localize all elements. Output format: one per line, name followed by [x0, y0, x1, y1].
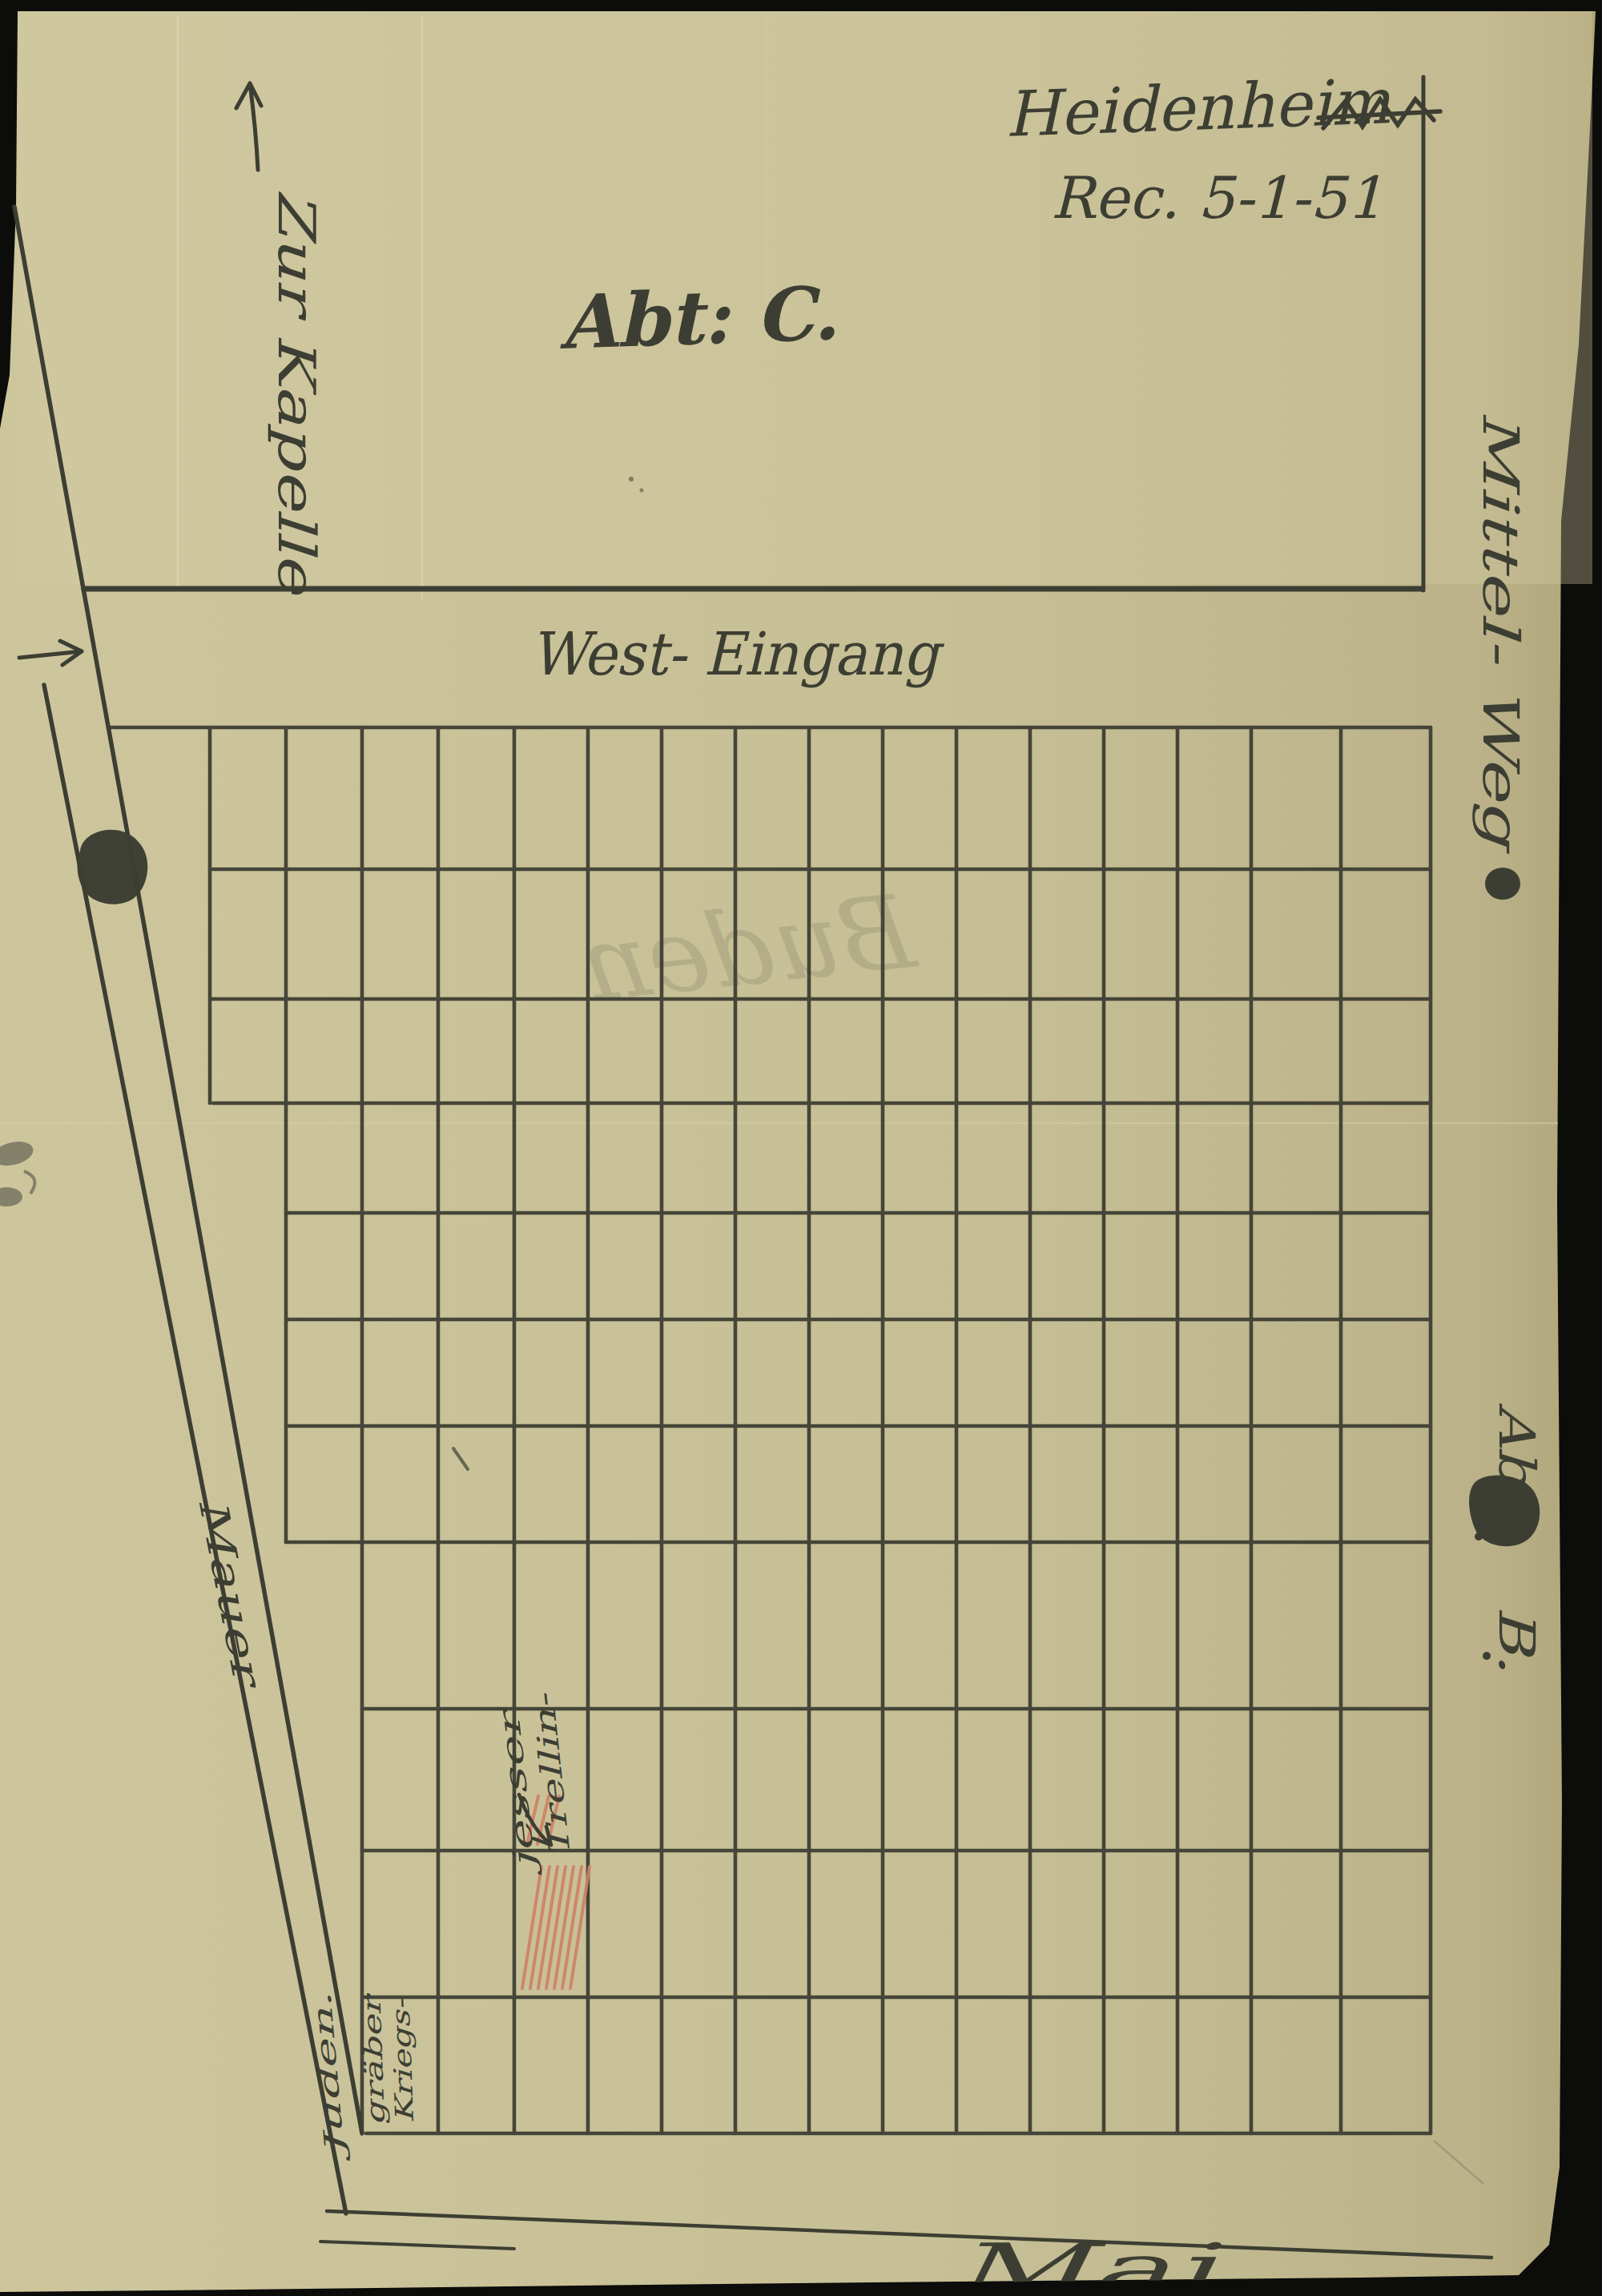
corner-cell-label-line1: Kriegs-: [386, 1997, 419, 2124]
plan-canvas: Buden Heidenheim Rec. 5-1-51 Abt: C. Zur…: [0, 0, 1602, 2296]
scanned-cemetery-plan: Buden Heidenheim Rec. 5-1-51 Abt: C. Zur…: [0, 0, 1602, 2296]
section-c-label: Abt: C.: [557, 270, 839, 366]
ink-spot-wall: [78, 830, 148, 904]
ink-dot-1: [1475, 1533, 1483, 1541]
ink-speck-1: [629, 477, 634, 481]
header-received-label: Rec. 5-1-51: [1051, 164, 1383, 232]
section-b-label-b: B.: [1487, 1606, 1546, 1674]
ink-dot-2: [1483, 1652, 1491, 1660]
middle-way-label: Mittel- Weg: [1471, 410, 1530, 854]
to-chapel-label: Zur Kapelle: [267, 188, 326, 596]
corner-cell-label-line2: gräber: [356, 1992, 390, 2126]
ink-speck-2: [640, 489, 644, 493]
west-entrance-label: West- Eingang: [530, 619, 944, 688]
ink-spot-mittel-weg: [1485, 868, 1520, 900]
header-location-label: Heidenheim: [1004, 65, 1391, 151]
